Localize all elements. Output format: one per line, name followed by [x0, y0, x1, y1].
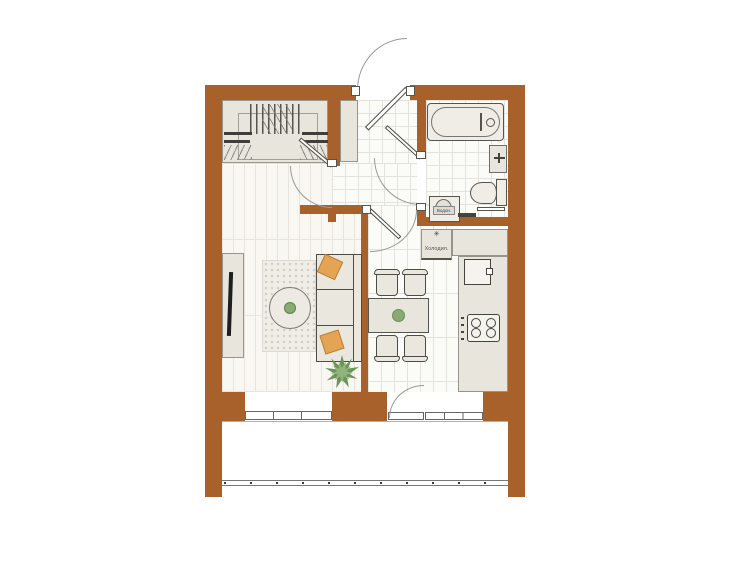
wall-right — [508, 85, 525, 497]
burner-icon — [471, 328, 481, 338]
wardrobe-shelf-items-icon — [224, 145, 252, 160]
water-heater: Водон. — [429, 196, 460, 222]
burner-icon — [471, 318, 481, 328]
fridge-label: Холодил. — [421, 245, 452, 253]
wall-partition-living-kitchen — [361, 214, 368, 392]
facade-line — [222, 421, 508, 422]
kitchen-door-jamb — [362, 205, 371, 214]
tv-console — [222, 253, 244, 358]
dining-chair — [404, 335, 426, 359]
sofa-seat-divider — [317, 289, 353, 290]
washbasin-faucet-icon — [498, 153, 500, 163]
toilet-bowl — [470, 182, 497, 204]
balcony-glazing — [222, 480, 508, 486]
sink-faucet-icon — [486, 268, 493, 275]
water-heater-label: Водон. — [433, 207, 455, 214]
wall-pier-right — [483, 392, 508, 422]
wall-pier-center — [332, 392, 387, 422]
wall-hall-stub — [328, 214, 336, 222]
hall-cabinet — [340, 100, 358, 162]
snowflake-icon: ✳ — [421, 231, 452, 239]
wardrobe-shelf-bar — [302, 132, 328, 135]
sofa-back — [353, 255, 361, 361]
entrance-door-jamb — [351, 86, 360, 96]
bathtub-drain-icon — [486, 118, 495, 127]
wardrobe-hangers-diagonal-icon — [262, 104, 292, 134]
floor-plan: ✳ Холодил. Водон. — [0, 0, 739, 576]
dining-chair — [404, 272, 426, 296]
stove-knobs-icon — [461, 317, 464, 341]
toilet-tank — [496, 179, 507, 206]
kitchen-window — [425, 412, 483, 420]
entrance-door-arc — [357, 38, 407, 90]
dining-chair — [376, 335, 398, 359]
balcony-floor — [222, 422, 508, 480]
wall-bathroom-upper — [417, 100, 426, 158]
bathroom-door-jamb — [416, 203, 426, 211]
bathtub-faucet-icon — [480, 113, 482, 131]
wall-hall-bottom — [300, 205, 370, 214]
burner-icon — [486, 328, 496, 338]
sofa-seat-divider — [317, 325, 353, 326]
bath-mat — [477, 207, 505, 211]
bathroom-shelf-bar — [458, 213, 476, 217]
wall-wardrobe-right — [328, 100, 340, 166]
table-plant-icon — [392, 309, 405, 322]
bathtub — [427, 103, 504, 141]
kitchen-counter-top — [452, 229, 508, 256]
entrance-door-jamb — [406, 86, 415, 96]
dining-chair — [376, 272, 398, 296]
living-door-jamb — [327, 159, 337, 167]
living-room-window — [245, 411, 332, 420]
bathroom-door-jamb — [416, 151, 426, 159]
glazing-ticks-icon — [224, 482, 506, 484]
wall-pier-left — [222, 392, 245, 422]
stove — [467, 314, 500, 342]
wardrobe-shelf-bar — [224, 140, 250, 143]
coffee-table-plant-icon — [284, 302, 296, 314]
wall-left — [205, 85, 222, 497]
burner-icon — [486, 318, 496, 328]
wall-top-left — [205, 85, 356, 100]
wardrobe-shelf-bar — [224, 132, 252, 135]
